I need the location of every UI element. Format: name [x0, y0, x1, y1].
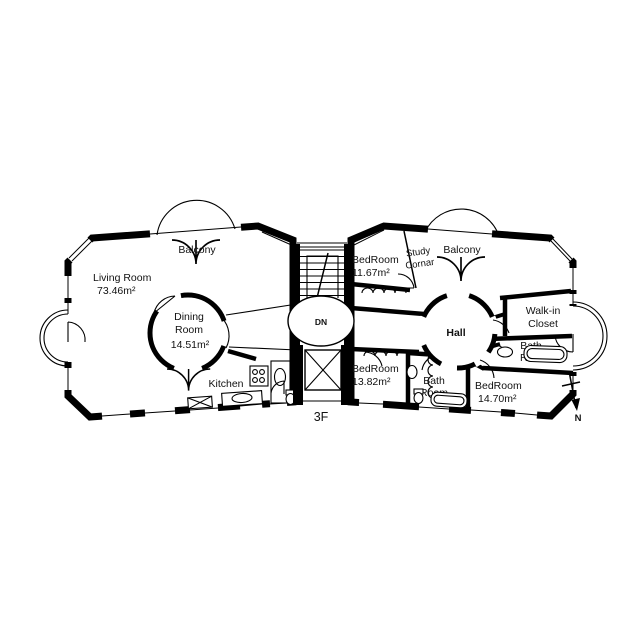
window [428, 229, 492, 234]
bedroom-left-area: 13.82m² [352, 376, 391, 388]
walk-in-closet-label-2: Closet [528, 318, 558, 330]
stove-icon [250, 366, 268, 386]
dining-room-area: 14.51m² [171, 339, 210, 351]
elevator-wall [341, 345, 351, 405]
floor-plan-page: Balcony Living Room 73.46m² Dining Room … [0, 0, 640, 640]
compass-label: N [575, 413, 582, 424]
dining-room-label-1: Dining [174, 311, 204, 323]
stairs-dn-label: DN [315, 317, 327, 327]
living-room-label: Living Room [93, 272, 152, 284]
bathtub-icon [524, 345, 568, 362]
left-wing: Balcony Living Room 73.46m² Dining Room … [40, 200, 297, 417]
floor-plan-canvas: Balcony Living Room 73.46m² Dining Room … [0, 0, 640, 640]
compass-arrowhead [572, 398, 581, 411]
toilet-icon [414, 389, 423, 404]
sink-icon [407, 366, 417, 379]
kitchen-label: Kitchen [208, 378, 243, 390]
sink-icon [498, 347, 513, 357]
bedroom-right-label: BedRoom [475, 380, 522, 392]
balcony-left-label: Balcony [178, 244, 216, 256]
balcony-right-label: Balcony [443, 244, 481, 256]
appliance-icon [188, 396, 213, 409]
bedroom-top-label: BedRoom [352, 254, 399, 266]
bathtub-icon [431, 392, 468, 408]
bath-bottom-label-1: Bath [423, 375, 445, 387]
living-room-area: 73.46m² [97, 285, 136, 297]
bedroom-left-label: BedRoom [352, 363, 399, 375]
elevator-wall [293, 345, 303, 405]
walk-in-closet-label-1: Walk-in [526, 305, 561, 317]
bedroom-top-area: 11.67m² [352, 267, 390, 279]
closet-wall [489, 336, 572, 339]
hall-label: Hall [446, 327, 465, 339]
floor-label: 3F [314, 410, 329, 424]
bedroom-right-area: 14.70m² [478, 393, 517, 405]
dining-room-label-2: Room [175, 324, 203, 336]
kitchen-sink-counter [222, 391, 263, 407]
